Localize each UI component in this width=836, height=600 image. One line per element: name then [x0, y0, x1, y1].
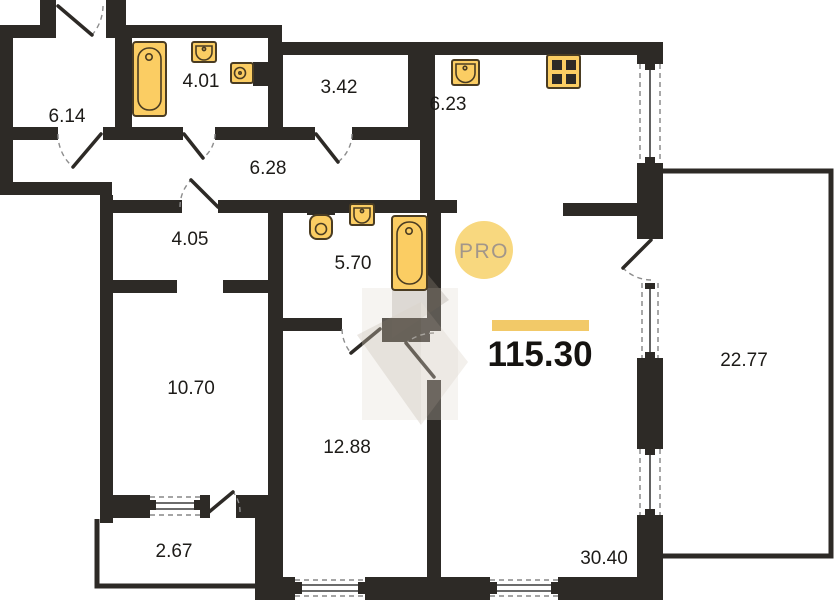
toilet-icon — [307, 206, 335, 239]
total-area-accent-bar — [492, 320, 589, 331]
wall-segment — [637, 163, 663, 239]
wall-segment — [218, 200, 270, 213]
room-area-label: 6.14 — [49, 106, 86, 127]
wall-segment — [0, 25, 13, 195]
wall-segment — [420, 55, 435, 213]
window-symbol — [490, 580, 558, 596]
wall-segment — [637, 42, 663, 64]
wall-segment — [100, 195, 113, 523]
wall-segment — [558, 577, 662, 600]
wall-segment — [268, 318, 342, 331]
wall-segment — [236, 495, 270, 518]
window-symbol — [150, 497, 200, 515]
door-swing-symbol — [180, 180, 218, 207]
wall-segment — [0, 127, 58, 140]
wall-segment — [637, 358, 663, 449]
wall-segment — [563, 203, 641, 216]
stove-icon — [547, 55, 580, 88]
sink-icon — [350, 204, 374, 225]
wall-segment — [0, 182, 112, 195]
room-area-label: 12.88 — [323, 437, 371, 458]
entrance-door-symbol — [58, 6, 103, 35]
sink-icon — [452, 60, 479, 85]
balcony-door-symbol — [623, 240, 651, 280]
total-area-value: 115.30 — [487, 335, 592, 374]
wall-segment — [268, 42, 663, 55]
total-area-block: 115.30 — [487, 320, 592, 374]
wall-segment — [100, 280, 177, 293]
pro-badge-text: PRO — [459, 240, 509, 263]
floor-plan-drawing: 6.14 4.01 3.42 6.23 6.28 4.05 5.70 10.70… — [0, 0, 836, 600]
balcony-door-symbol — [209, 492, 240, 512]
window-symbol — [642, 283, 658, 358]
wall-segment — [100, 200, 182, 213]
sink-icon — [231, 63, 253, 83]
room-area-label: 6.23 — [430, 94, 467, 115]
room-area-label: 5.70 — [335, 253, 372, 274]
room-area-label: 30.40 — [580, 548, 628, 569]
window-symbol — [640, 449, 660, 515]
room-area-label: 22.77 — [720, 350, 768, 371]
floor-plan-page: 6.14 4.01 3.42 6.23 6.28 4.05 5.70 10.70… — [0, 0, 836, 600]
pro-badge: PRO — [455, 221, 513, 279]
wall-segment — [255, 577, 295, 600]
wall-segment — [223, 280, 270, 293]
window-symbol — [295, 580, 365, 596]
bathtub-icon — [133, 42, 166, 116]
wall-segment — [115, 38, 132, 128]
wall-segment — [352, 127, 423, 140]
room-area-label: 10.70 — [167, 378, 215, 399]
wall-segment — [268, 55, 283, 127]
room-area-label: 3.42 — [321, 77, 358, 98]
room-area-label: 4.01 — [183, 71, 220, 92]
wall-segment — [100, 495, 150, 518]
room-area-label: 2.67 — [156, 541, 193, 562]
door-swing-symbol — [184, 134, 215, 158]
room-area-label: 6.28 — [250, 158, 287, 179]
wall-segment — [40, 0, 56, 38]
wall-segment — [103, 127, 183, 140]
wall-segment — [200, 495, 210, 518]
wall-segment — [122, 25, 282, 38]
wall-segment — [365, 577, 490, 600]
room-area-label: 4.05 — [172, 229, 209, 250]
wall-segment — [253, 62, 270, 86]
bathtub-icon — [392, 216, 427, 290]
door-swing-symbol — [58, 134, 101, 167]
wall-segment — [215, 127, 315, 140]
sink-icon — [192, 42, 216, 62]
door-swing-symbol — [316, 134, 352, 162]
window-symbol — [640, 64, 660, 163]
